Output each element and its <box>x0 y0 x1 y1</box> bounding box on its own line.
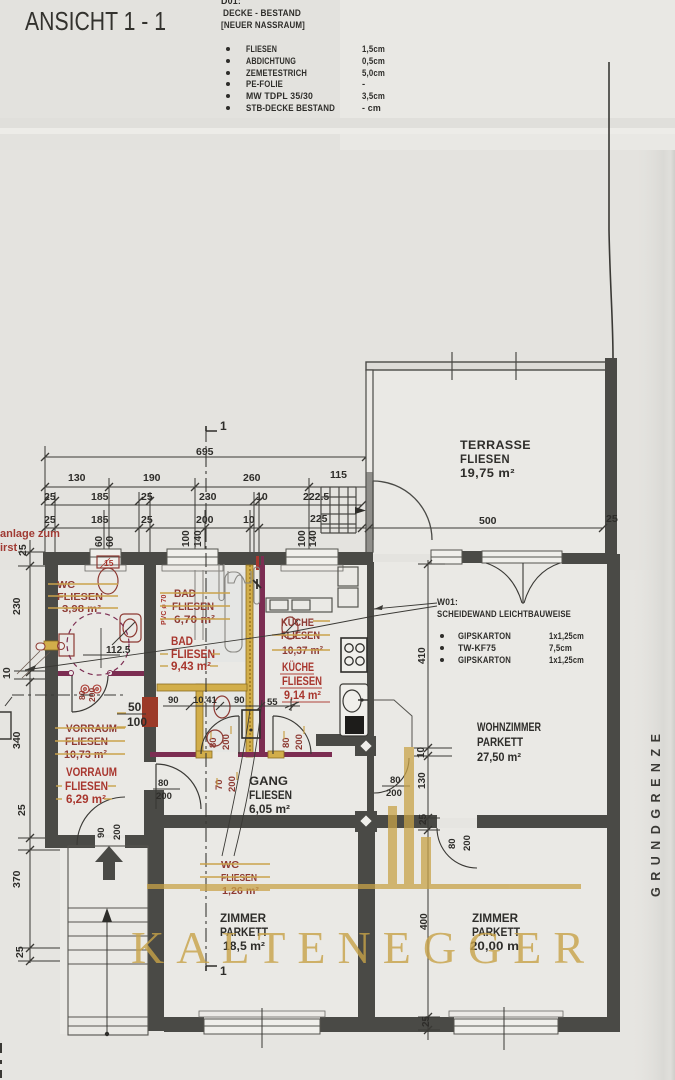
svg-text:7,5cm: 7,5cm <box>549 643 572 654</box>
svg-text:27,50 m²: 27,50 m² <box>477 752 521 764</box>
svg-text:80: 80 <box>390 775 401 786</box>
svg-text:ZEMETESTRICH: ZEMETESTRICH <box>246 68 307 79</box>
svg-text:FLIESEN: FLIESEN <box>65 781 108 793</box>
svg-text:6,05 m²: 6,05 m² <box>249 804 290 816</box>
svg-text:MW TDPL 35/30: MW TDPL 35/30 <box>246 91 313 102</box>
svg-text:- cm: - cm <box>362 103 381 114</box>
svg-text:FLIESEN: FLIESEN <box>221 872 257 884</box>
svg-text:WC: WC <box>221 859 239 871</box>
svg-text:FLIESEN: FLIESEN <box>57 591 103 603</box>
svg-text:140: 140 <box>308 530 319 547</box>
svg-text:25: 25 <box>17 544 29 556</box>
svg-text:ABDICHTUNG: ABDICHTUNG <box>246 56 296 67</box>
svg-text:9,14 m²: 9,14 m² <box>284 690 321 702</box>
svg-text:25: 25 <box>141 491 153 503</box>
svg-text:100: 100 <box>297 530 308 547</box>
svg-text:25: 25 <box>418 813 429 825</box>
svg-text:25: 25 <box>44 491 56 503</box>
svg-text:190: 190 <box>143 472 161 484</box>
svg-text:DECKE - BESTAND: DECKE - BESTAND <box>223 8 301 19</box>
svg-text:STB-DECKE BESTAND: STB-DECKE BESTAND <box>246 103 335 114</box>
svg-text:1x1,25cm: 1x1,25cm <box>549 655 584 666</box>
svg-text:10: 10 <box>243 514 255 526</box>
svg-text:25: 25 <box>606 513 618 525</box>
svg-text:KALTENEGGER: KALTENEGGER <box>131 922 596 973</box>
svg-text:25: 25 <box>44 514 56 526</box>
svg-text:60: 60 <box>94 535 105 547</box>
svg-text:260: 260 <box>243 472 261 484</box>
svg-text:10: 10 <box>1 667 13 679</box>
svg-text:PVC ø 70: PVC ø 70 <box>161 595 168 625</box>
svg-text:500: 500 <box>479 515 497 527</box>
svg-text:irst: irst <box>0 542 17 554</box>
svg-text:115: 115 <box>330 469 347 481</box>
svg-text:200: 200 <box>112 824 123 840</box>
svg-text:[NEUER NASSRAUM]: [NEUER NASSRAUM] <box>221 20 305 31</box>
svg-text:6,70 m²: 6,70 m² <box>174 614 215 626</box>
svg-text:10,37 m²: 10,37 m² <box>282 645 323 657</box>
svg-text:GANG: GANG <box>249 776 288 788</box>
svg-text:1,5cm: 1,5cm <box>362 44 385 55</box>
svg-text:W01:: W01: <box>437 597 458 608</box>
svg-text:VORRAUM: VORRAUM <box>66 723 117 735</box>
svg-text:25: 25 <box>421 1015 432 1027</box>
svg-text:PE-FOLIE: PE-FOLIE <box>246 79 283 90</box>
svg-text:FLIESEN: FLIESEN <box>171 649 215 661</box>
svg-text:10,73 m²: 10,73 m² <box>64 749 107 761</box>
svg-text:-: - <box>362 79 365 90</box>
svg-text:112.5: 112.5 <box>106 645 131 656</box>
svg-text:GIPSKARTON: GIPSKARTON <box>458 655 511 666</box>
svg-text:FLIESEN: FLIESEN <box>249 790 292 802</box>
svg-text:KÜCHE: KÜCHE <box>281 616 314 629</box>
svg-text:1: 1 <box>220 419 227 433</box>
svg-text:FLIESEN: FLIESEN <box>281 630 320 642</box>
svg-text:5,0cm: 5,0cm <box>362 68 385 79</box>
svg-text:410: 410 <box>417 647 428 664</box>
svg-text:FLIESEN: FLIESEN <box>460 454 510 466</box>
svg-text:185: 185 <box>91 514 109 526</box>
svg-text:140: 140 <box>193 530 204 547</box>
svg-text:FLIESEN: FLIESEN <box>246 44 277 55</box>
svg-text:TW-KF75: TW-KF75 <box>458 643 496 654</box>
svg-text:19,75 m²: 19,75 m² <box>460 468 515 480</box>
svg-text:10: 10 <box>256 491 268 503</box>
svg-text:BAD: BAD <box>171 636 193 648</box>
svg-text:D01:: D01: <box>221 0 241 7</box>
svg-text:FLIESEN: FLIESEN <box>65 736 108 748</box>
svg-text:70: 70 <box>214 779 225 790</box>
svg-text:100: 100 <box>181 530 192 547</box>
svg-text:1x1,25cm: 1x1,25cm <box>549 631 584 642</box>
svg-text:FLIESEN: FLIESEN <box>172 601 214 613</box>
svg-text:80: 80 <box>281 737 292 748</box>
svg-text:80: 80 <box>158 778 169 789</box>
svg-text:200: 200 <box>196 514 214 526</box>
svg-text:130: 130 <box>417 772 428 789</box>
svg-text:90: 90 <box>168 695 179 706</box>
svg-text:9,43 m²: 9,43 m² <box>171 661 211 673</box>
svg-text:230: 230 <box>199 491 217 503</box>
svg-text:370: 370 <box>11 870 23 888</box>
svg-text:25: 25 <box>141 514 153 526</box>
svg-text:50: 50 <box>128 700 142 714</box>
svg-text:60: 60 <box>105 535 116 547</box>
svg-text:230: 230 <box>11 597 23 615</box>
svg-text:25: 25 <box>16 804 28 816</box>
svg-text:200: 200 <box>386 788 402 799</box>
svg-text:0,5cm: 0,5cm <box>362 56 385 67</box>
svg-text:10.41: 10.41 <box>193 695 217 706</box>
svg-text:SCHEIDEWAND LEICHTBAUWEISE: SCHEIDEWAND LEICHTBAUWEISE <box>437 609 571 620</box>
svg-text:80: 80 <box>447 838 458 849</box>
svg-text:90: 90 <box>234 695 245 706</box>
svg-text:WOHNZIMMER: WOHNZIMMER <box>477 722 542 734</box>
svg-text:3,5cm: 3,5cm <box>362 91 385 102</box>
svg-text:200: 200 <box>156 791 172 802</box>
svg-text:VORRAUM: VORRAUM <box>66 767 117 779</box>
svg-text:3,98 m²: 3,98 m² <box>62 603 102 615</box>
svg-text:130: 130 <box>68 472 86 484</box>
svg-text:KÜCHE: KÜCHE <box>282 661 314 674</box>
svg-text:10: 10 <box>416 746 427 758</box>
svg-text:TERRASSE: TERRASSE <box>460 440 531 452</box>
svg-text:225: 225 <box>310 513 328 525</box>
svg-text:100: 100 <box>127 715 147 729</box>
svg-text:695: 695 <box>196 446 214 458</box>
svg-text:WC: WC <box>57 579 75 591</box>
svg-text:FLIESEN: FLIESEN <box>282 676 322 688</box>
svg-text:200: 200 <box>462 835 473 851</box>
svg-text:anlage zum: anlage zum <box>0 528 60 540</box>
svg-text:6,29 m²: 6,29 m² <box>66 794 106 806</box>
svg-text:90: 90 <box>96 827 107 838</box>
svg-text:25: 25 <box>14 946 26 958</box>
svg-text:200: 200 <box>294 734 305 750</box>
svg-text:340: 340 <box>11 731 23 749</box>
svg-text:GIPSKARTON: GIPSKARTON <box>458 631 511 642</box>
svg-text:PARKETT: PARKETT <box>477 737 523 749</box>
svg-text:185: 185 <box>91 491 109 503</box>
svg-text:ANSICHT 1 - 1: ANSICHT 1 - 1 <box>25 6 166 36</box>
svg-text:BAD: BAD <box>174 588 196 600</box>
svg-text:GRUNDGRENZE: GRUNDGRENZE <box>649 728 663 897</box>
